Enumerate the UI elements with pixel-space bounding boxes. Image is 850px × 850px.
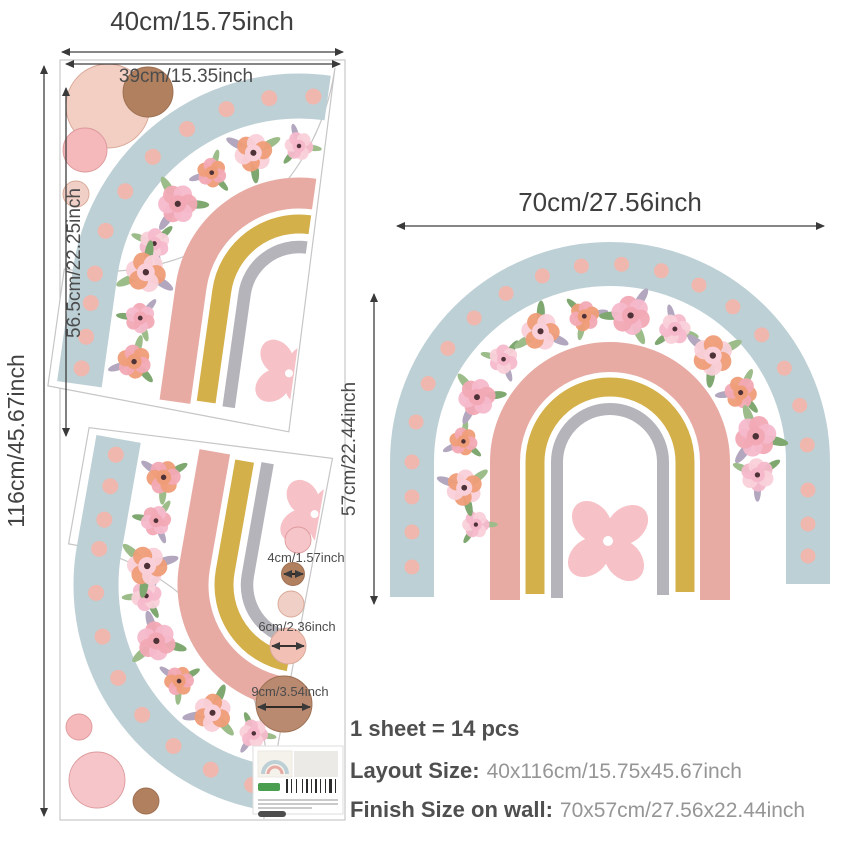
decal-circle: [278, 591, 304, 617]
layout-size-value: 40x116cm/15.75x45.67inch: [487, 760, 742, 783]
product-size-diagram: 40cm/15.75inch 39cm/15.35inch 116cm/45.6…: [0, 0, 850, 850]
decal-circle: [69, 752, 125, 808]
wall-height-label: 57cm/22.44inch: [339, 382, 360, 516]
circle-4cm-label: 4cm/1.57inch: [267, 550, 344, 565]
label-thumbnail-photo: [294, 751, 338, 777]
wall-width-label: 70cm/27.56inch: [518, 187, 702, 217]
finish-size-label: Finish Size on wall:: [350, 797, 553, 822]
finish-size-value: 70x57cm/27.56x22.44inch: [560, 799, 805, 822]
sheet-height-label: 116cm/45.67inch: [3, 354, 29, 527]
sheet-width-label: 40cm/15.75inch: [110, 6, 294, 36]
diagram-canvas: 40cm/15.75inch 39cm/15.35inch 116cm/45.6…: [0, 0, 850, 850]
product-label-card: [253, 746, 343, 817]
sheet-inner-width-label: 39cm/15.35inch: [119, 66, 253, 87]
finish-size-text: Finish Size on wall:70x57cm/27.56x22.44i…: [350, 797, 805, 822]
decal-circle: [63, 128, 107, 172]
decal-circle: [66, 714, 92, 740]
decal-circle: [133, 788, 159, 814]
circle-9cm-label: 9cm/3.54inch: [251, 684, 328, 699]
brand-logo-mark: [258, 783, 280, 791]
piece-height-label: 56.5cm/22.25inch: [64, 188, 85, 338]
layout-size-label: Layout Size:: [350, 758, 480, 783]
layout-size-text: Layout Size:40x116cm/15.75x45.67inch: [350, 758, 742, 783]
sheet-pieces-text: 1 sheet = 14 pcs: [350, 716, 519, 741]
circle-6cm-label: 6cm/2.36inch: [258, 619, 335, 634]
label-pill-badge: [258, 811, 286, 817]
